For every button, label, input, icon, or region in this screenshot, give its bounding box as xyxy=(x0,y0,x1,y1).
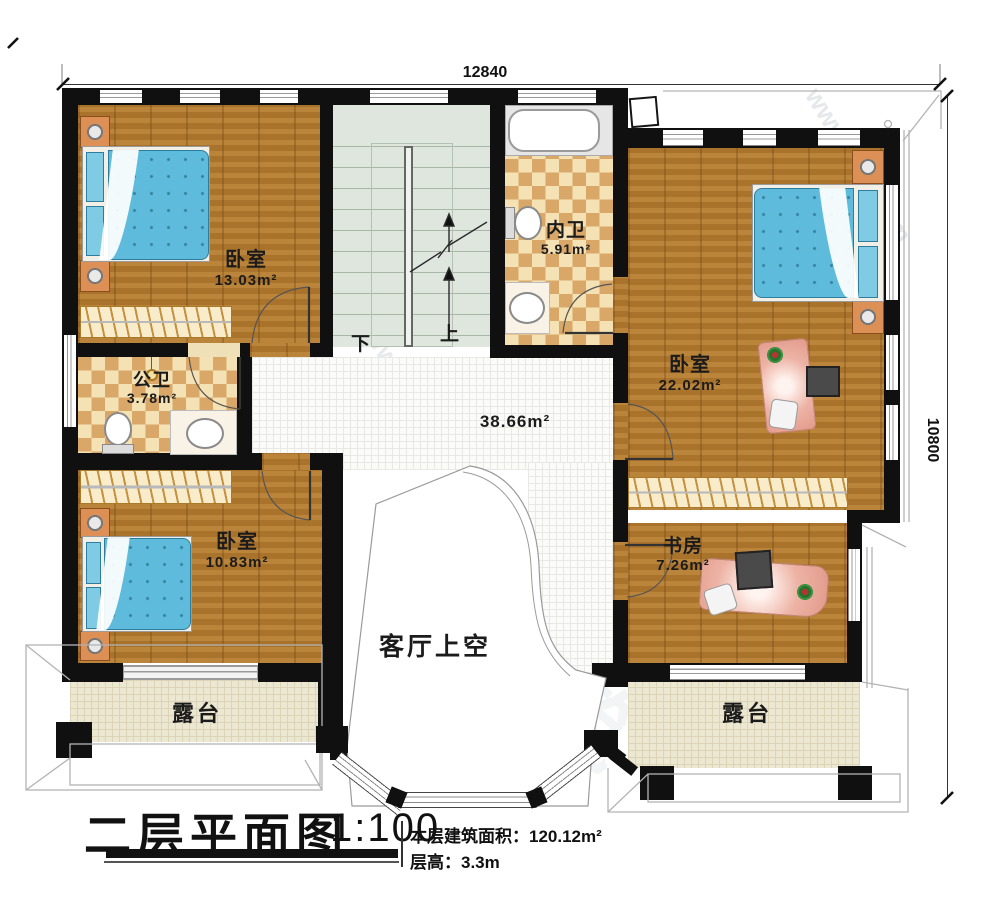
room-label-bath-public: 公卫 xyxy=(110,370,194,391)
room-label-bedroom-e: 卧室 xyxy=(620,354,760,377)
floor-plan-canvas: 柏筑 柏筑 柏筑 柏筑 www.bzjz.com www.bzjz.com ww… xyxy=(0,0,1000,914)
plan-overlay xyxy=(0,0,1000,914)
room-label-bedroom-sw: 卧室 xyxy=(171,531,303,554)
floor-area-text: 本层建筑面积：120.12m² xyxy=(410,822,602,847)
terrace-left-label: 露台 xyxy=(155,701,239,726)
floor-height-text: 层高：3.3m xyxy=(410,848,500,873)
room-area-bath-inner: 5.91m² xyxy=(526,241,606,257)
terrace-right-label: 露台 xyxy=(705,701,789,726)
title-underline-thin xyxy=(104,861,399,863)
stairs-down-label: 下 xyxy=(348,334,374,356)
room-label-bedroom-nw: 卧室 xyxy=(180,249,312,272)
eave-right-side xyxy=(862,130,909,688)
eave-top-right xyxy=(663,91,941,141)
bay-corner xyxy=(316,726,348,753)
stairs-up-label: 上 xyxy=(437,324,463,346)
room-area-study: 7.26m² xyxy=(628,557,738,574)
room-area-bedroom-sw: 10.83m² xyxy=(171,554,303,571)
room-area-bath-public: 3.78m² xyxy=(110,390,194,406)
room-area-bedroom-nw: 13.03m² xyxy=(180,272,312,289)
stair-direction-marks xyxy=(410,214,487,330)
hall-area: 38.66m² xyxy=(460,412,570,432)
title-divider xyxy=(401,821,403,867)
title-underline-thick xyxy=(106,849,398,858)
room-area-bedroom-e: 22.02m² xyxy=(620,377,760,394)
room-label-study: 书房 xyxy=(628,536,738,558)
living-void-label: 客厅上空 xyxy=(345,633,525,662)
room-label-bath-inner: 内卫 xyxy=(526,220,606,242)
